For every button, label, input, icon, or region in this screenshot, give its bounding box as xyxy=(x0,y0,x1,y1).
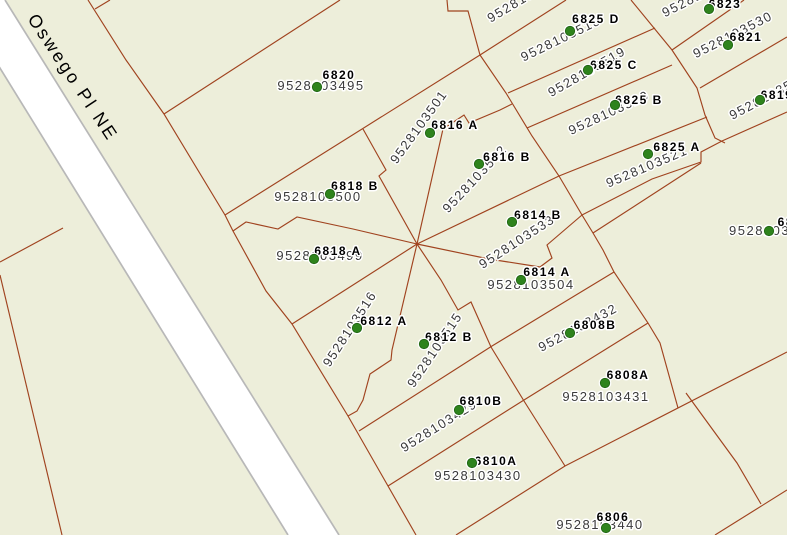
svg-text:9528103430: 9528103430 xyxy=(434,468,521,483)
svg-text:6816 B: 6816 B xyxy=(483,150,531,164)
svg-text:6806: 6806 xyxy=(597,510,630,524)
svg-text:6818 A: 6818 A xyxy=(314,244,361,258)
svg-text:6817: 6817 xyxy=(778,215,787,229)
svg-text:6825 A: 6825 A xyxy=(653,140,700,154)
svg-text:6818 B: 6818 B xyxy=(331,179,379,193)
svg-text:6820: 6820 xyxy=(323,68,356,82)
svg-text:6825 B: 6825 B xyxy=(615,93,663,107)
svg-text:6814 B: 6814 B xyxy=(514,208,562,222)
svg-text:9528103504: 9528103504 xyxy=(487,277,574,292)
svg-text:6816 A: 6816 A xyxy=(431,118,478,132)
svg-text:6812 B: 6812 B xyxy=(425,330,473,344)
svg-text:6808A: 6808A xyxy=(607,368,650,382)
svg-text:6810B: 6810B xyxy=(460,394,503,408)
svg-text:6810A: 6810A xyxy=(475,454,518,468)
svg-text:6812 A: 6812 A xyxy=(360,314,407,328)
svg-text:9528103431: 9528103431 xyxy=(562,389,649,404)
svg-text:6825 D: 6825 D xyxy=(572,12,620,26)
svg-text:6821: 6821 xyxy=(730,30,763,44)
svg-text:6814 A: 6814 A xyxy=(523,265,570,279)
svg-text:6808B: 6808B xyxy=(574,318,617,332)
svg-text:6825 C: 6825 C xyxy=(590,58,638,72)
